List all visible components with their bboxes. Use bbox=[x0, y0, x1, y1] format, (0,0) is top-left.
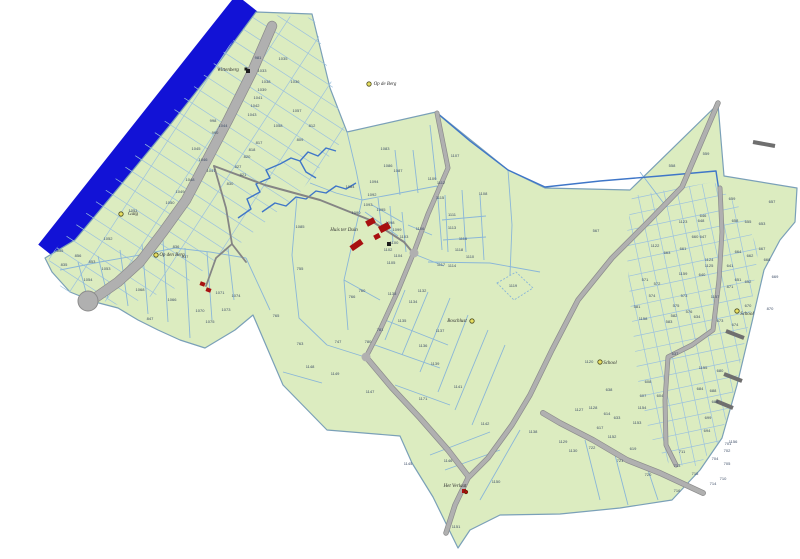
parcel-number: 1112 bbox=[437, 180, 446, 185]
place-label: Boschlust bbox=[447, 319, 467, 324]
parcel-number: 870 bbox=[767, 306, 774, 311]
parcel-number: 710 bbox=[720, 476, 727, 481]
parcel-number: 1100 bbox=[390, 240, 399, 245]
parcel-number: 1087 bbox=[394, 168, 404, 173]
parcel-number: 1142 bbox=[481, 421, 490, 426]
parcel-number: 674 bbox=[732, 322, 739, 327]
parcel-number: 837 bbox=[182, 254, 189, 259]
parcel-number: 1106 bbox=[416, 226, 425, 231]
parcel-grid-line bbox=[780, 248, 800, 559]
parcel-number: 651 bbox=[735, 277, 742, 282]
parcel-number: 1084 bbox=[346, 184, 356, 189]
parcel-number: 1057 bbox=[293, 108, 303, 113]
parcel-number: 1102 bbox=[384, 247, 393, 252]
parcel-number: 634 bbox=[694, 314, 701, 319]
parcel-number: 1038 bbox=[262, 79, 272, 84]
parcel-number: 1159 bbox=[679, 271, 688, 276]
parcel-number: 638 bbox=[606, 387, 613, 392]
parcel-number: 1041 bbox=[254, 95, 264, 100]
parcel-number: 567 bbox=[593, 228, 600, 233]
parcel-number: 1132 bbox=[418, 288, 427, 293]
parcel-number: 660 bbox=[692, 234, 699, 239]
parcel-number: 1107 bbox=[451, 153, 460, 158]
parcel-number: 1141 bbox=[454, 384, 463, 389]
parcel-grid-line bbox=[0, 0, 800, 122]
parcel-number: 668 bbox=[764, 257, 771, 262]
map-canvas[interactable]: WittenbergOp de BergGalgOp den BergHuis … bbox=[0, 0, 800, 559]
parcel-number: 1128 bbox=[589, 405, 598, 410]
parcel-number: 720 bbox=[645, 472, 652, 477]
parcel-grid-line bbox=[0, 0, 800, 21]
parcel-number: 1151 bbox=[452, 524, 461, 529]
parcel-number: 1071 bbox=[216, 290, 226, 295]
place-label: Wittenberg bbox=[217, 68, 239, 73]
parcel-number: 1093 bbox=[364, 202, 374, 207]
parcel-grid-line bbox=[758, 0, 800, 559]
parcel-number: 714 bbox=[710, 481, 717, 486]
parcel-number: 1094 bbox=[370, 179, 380, 184]
parcel-number: 558 bbox=[669, 163, 676, 168]
place-label: School bbox=[603, 361, 617, 366]
parcel-number: 1147 bbox=[366, 389, 375, 394]
road-stub bbox=[753, 142, 775, 146]
parcel-number: 694 bbox=[704, 428, 711, 433]
landmark-square-icon bbox=[245, 68, 248, 71]
place-label: Op de Berg bbox=[374, 82, 397, 87]
parcel-number: 1156 bbox=[729, 439, 738, 444]
parcel-number: 1048 bbox=[186, 177, 196, 182]
parcel-number: 647 bbox=[700, 234, 707, 239]
parcel-number: 637 bbox=[672, 351, 679, 356]
parcel-number: 657 bbox=[769, 199, 776, 204]
parcel-number: 1054 bbox=[84, 277, 94, 282]
parcel-grid-line bbox=[0, 0, 800, 46]
parcel-number: 1150 bbox=[492, 479, 501, 484]
parcel-number: 633 bbox=[614, 415, 621, 420]
parcel-number: 1130 bbox=[569, 448, 578, 453]
parcel-number: 1116 bbox=[459, 236, 468, 241]
parcel-number: 1138 bbox=[529, 429, 538, 434]
parcel-number: 1137 bbox=[436, 328, 445, 333]
parcel-number: 658 bbox=[732, 218, 739, 223]
parcel-number: 684 bbox=[697, 386, 704, 391]
parcel-number: 573 bbox=[681, 293, 688, 298]
parcel-number: 576 bbox=[686, 309, 693, 314]
parcel-grid-line bbox=[0, 0, 800, 84]
parcel-number: 1155 bbox=[699, 365, 708, 370]
landmark-circle-icon bbox=[367, 82, 371, 86]
parcel-number: 1123 bbox=[679, 219, 688, 224]
parcel-grid-line bbox=[796, 0, 800, 559]
parcel-number: 1051 bbox=[129, 208, 139, 213]
landmark-circle-icon bbox=[470, 319, 474, 323]
parcel-grid-line bbox=[33, 0, 800, 111]
parcel-number: 871 bbox=[727, 284, 734, 289]
parcel-number: 812 bbox=[309, 123, 316, 128]
parcel-number: 1124 bbox=[705, 257, 714, 262]
parcel-number: 662 bbox=[747, 253, 754, 258]
parcel-number: 607 bbox=[640, 393, 647, 398]
parcel-grid-line bbox=[18, 0, 800, 38]
parcel-number: 760 bbox=[359, 288, 366, 293]
parcel-number: 1122 bbox=[651, 243, 660, 248]
parcel-number: 699 bbox=[705, 415, 712, 420]
parcel-grid-line bbox=[771, 0, 800, 559]
parcel-number: 1145 bbox=[404, 461, 413, 466]
parcel-number: 713 bbox=[674, 463, 681, 468]
parcel-number: 847 bbox=[147, 316, 154, 321]
parcel-number: 1033 bbox=[258, 68, 268, 73]
road-junction bbox=[410, 249, 419, 258]
parcel-grid-line bbox=[783, 0, 800, 559]
parcel-number: 1103 bbox=[400, 234, 409, 239]
parcel-number: 661 bbox=[680, 246, 687, 251]
parcel-number: 575 bbox=[673, 303, 680, 308]
parcel-number: 1111 bbox=[448, 212, 457, 217]
parcel-number: 619 bbox=[630, 446, 637, 451]
parcel-number: 1139 bbox=[431, 361, 440, 366]
parcel-number: 981 bbox=[255, 55, 262, 60]
parcel-grid-line bbox=[30, 0, 800, 97]
parcel-number: 664 bbox=[735, 249, 742, 254]
parcel-grid-line bbox=[0, 0, 83, 377]
parcel-number: 1171 bbox=[419, 396, 428, 401]
parcel-number: 835 bbox=[61, 262, 68, 267]
parcel-number: 817 bbox=[256, 140, 263, 145]
parcel-number: 663 bbox=[664, 250, 671, 255]
parcel-number: 1125 bbox=[705, 263, 714, 268]
landmark-circle-icon bbox=[154, 253, 158, 257]
parcel-number: 1114 bbox=[448, 263, 457, 268]
parcel-number: 1083 bbox=[381, 146, 391, 151]
parcel-number: 583 bbox=[666, 319, 673, 324]
landmark-red-icon bbox=[464, 490, 468, 494]
parcel-number: 1052 bbox=[104, 236, 114, 241]
parcel-number: 836 bbox=[173, 244, 180, 249]
parcel-number: 1053 bbox=[102, 266, 112, 271]
parcel-number: 1109 bbox=[428, 176, 437, 181]
parcel-grid-line bbox=[0, 0, 800, 72]
parcel-number: 830 bbox=[227, 181, 234, 186]
parcel-number: 721 bbox=[617, 458, 624, 463]
parcel-number: 1045 bbox=[192, 146, 202, 151]
parcel-number: 704 bbox=[712, 456, 719, 461]
parcel-number: 1136 bbox=[419, 343, 428, 348]
parcel-number: 1085 bbox=[296, 224, 306, 229]
parcel-number: 1073 bbox=[222, 307, 232, 312]
parcel-number: 747 bbox=[335, 339, 342, 344]
parcel-number: 673 bbox=[717, 318, 724, 323]
parcel-number: 1157 bbox=[711, 294, 720, 299]
parcel-number: 1044 bbox=[219, 123, 229, 128]
parcel-number: 722 bbox=[589, 445, 596, 450]
parcel-grid-line bbox=[12, 0, 800, 9]
parcel-grid-line bbox=[180, 551, 800, 559]
parcel-number: 1098 bbox=[386, 220, 396, 225]
parcel-number: 1117 bbox=[437, 262, 446, 267]
parcel-number: 1113 bbox=[448, 225, 457, 230]
parcel-number: 1095 bbox=[377, 207, 387, 212]
parcel-number: 1105 bbox=[387, 260, 396, 265]
parcel-number: 1129 bbox=[559, 439, 568, 444]
parcel-number: 1075 bbox=[206, 319, 216, 324]
parcel-number: 1146 bbox=[444, 458, 453, 463]
parcel-grid-line bbox=[0, 0, 800, 135]
parcel-number: 659 bbox=[729, 196, 736, 201]
parcel-number: 716 bbox=[674, 488, 681, 493]
parcel-number: 559 bbox=[703, 151, 710, 156]
parcel-number: 1042 bbox=[251, 103, 261, 108]
place-label: Huis ter Duin bbox=[329, 228, 358, 233]
parcel-number: 655 bbox=[745, 219, 752, 224]
landmark-circle-icon bbox=[735, 309, 739, 313]
parcel-number: 1149 bbox=[331, 371, 340, 376]
parcel-number: 581 bbox=[634, 304, 641, 309]
parcel-number: 574 bbox=[649, 293, 656, 298]
map-page: WittenbergOp de BergGalgOp den BergHuis … bbox=[0, 0, 800, 559]
parcel-number: 571 bbox=[642, 277, 649, 282]
parcel-number: 617 bbox=[597, 425, 604, 430]
parcel-number: 1099 bbox=[393, 227, 403, 232]
parcel-number: 711 bbox=[679, 449, 686, 454]
parcel-number: 1066 bbox=[168, 297, 178, 302]
parcel-number: 1119 bbox=[509, 283, 518, 288]
parcel-number: 998 bbox=[210, 118, 217, 123]
landmark-circle-icon bbox=[598, 360, 602, 364]
parcel-number: 1039 bbox=[258, 87, 268, 92]
parcel-number: 572 bbox=[654, 281, 661, 286]
parcel-grid-line bbox=[4, 0, 800, 9]
landmark-circle-icon bbox=[119, 212, 123, 216]
parcel-number: 604 bbox=[657, 393, 664, 398]
parcel-number: 1134 bbox=[409, 299, 418, 304]
parcel-number: 614 bbox=[604, 411, 611, 416]
parcel-number: 1148 bbox=[306, 364, 315, 369]
parcel-grid-line bbox=[0, 0, 800, 97]
parcel-number: 1108 bbox=[479, 191, 488, 196]
parcel-number: 766 bbox=[349, 294, 356, 299]
parcel-number: 1035 bbox=[279, 56, 289, 61]
parcel-number: 667 bbox=[759, 246, 766, 251]
road-end-bulb bbox=[78, 291, 98, 311]
parcel-number: 1158 bbox=[639, 316, 648, 321]
parcel-grid-line bbox=[0, 0, 800, 59]
parcel-number: 855 bbox=[57, 248, 64, 253]
parcel-grid-line bbox=[0, 0, 800, 34]
parcel-number: 669 bbox=[772, 274, 779, 279]
parcel-number: 809 bbox=[297, 137, 304, 142]
parcel-number: 1086 bbox=[384, 163, 394, 168]
parcel-number: 1104 bbox=[394, 253, 403, 258]
parcel-number: 1049 bbox=[176, 189, 186, 194]
parcel-number: 1118 bbox=[455, 247, 464, 252]
parcel-number: 1153 bbox=[633, 420, 642, 425]
parcel-number: 820 bbox=[244, 154, 251, 159]
parcel-number: 715 bbox=[692, 471, 699, 476]
parcel-number: 1047 bbox=[207, 168, 217, 173]
parcel-grid-line bbox=[15, 0, 800, 23]
parcel-number: 1133 bbox=[388, 291, 397, 296]
parcel-grid-line bbox=[0, 0, 800, 109]
parcel-number: 1036 bbox=[291, 79, 301, 84]
parcel-grid-line bbox=[177, 537, 800, 559]
parcel-number: 755 bbox=[297, 266, 304, 271]
parcel-number: 765 bbox=[273, 313, 280, 318]
parcel-number: 1074 bbox=[232, 293, 242, 298]
parcel-number: 1127 bbox=[575, 407, 584, 412]
parcel-number: 1046 bbox=[199, 157, 209, 162]
parcel-grid-line bbox=[27, 0, 800, 82]
parcel-number: 1090 bbox=[352, 210, 362, 215]
parcel-number: 780 bbox=[365, 339, 372, 344]
parcel-number: 1092 bbox=[368, 192, 378, 197]
parcel-number: 853 bbox=[89, 259, 96, 264]
parcel-number: 1154 bbox=[638, 405, 647, 410]
parcel-number: 640 bbox=[699, 272, 706, 277]
parcel-number: 990 bbox=[212, 130, 219, 135]
parcel-number: 818 bbox=[249, 147, 256, 152]
parcel-number: 641 bbox=[727, 263, 734, 268]
parcel-number: 763 bbox=[297, 341, 304, 346]
parcel-number: 1070 bbox=[196, 308, 206, 313]
place-label: Het Verlaat bbox=[443, 484, 468, 489]
parcel-number: 702 bbox=[724, 448, 731, 453]
parcel-number: 1043 bbox=[248, 112, 258, 117]
parcel-number: 856 bbox=[75, 253, 82, 258]
parcel-number: 1110 bbox=[466, 254, 475, 259]
parcel-grid-line bbox=[0, 0, 25, 339]
parcel-number: 1050 bbox=[166, 200, 176, 205]
road-junction bbox=[362, 353, 371, 362]
parcel-number: 821 bbox=[240, 172, 247, 177]
parcel-number: 705 bbox=[724, 461, 731, 466]
parcel-number: 1115 bbox=[436, 195, 445, 200]
parcel-number: 653 bbox=[759, 221, 766, 226]
parcel-grid-line bbox=[174, 522, 800, 559]
parcel-number: 670 bbox=[745, 303, 752, 308]
parcel-number: 582 bbox=[671, 313, 678, 318]
parcel-number: 781 bbox=[377, 327, 384, 332]
parcel-number: 680 bbox=[717, 368, 724, 373]
parcel-grid-line bbox=[24, 0, 800, 67]
parcel-number: 652 bbox=[745, 279, 752, 284]
parcel-number: 689 bbox=[712, 399, 719, 404]
parcel-grid-line bbox=[21, 0, 800, 53]
parcel-number: 1152 bbox=[608, 434, 617, 439]
parcel-number: 608 bbox=[645, 379, 652, 384]
parcel-number: 688 bbox=[710, 388, 717, 393]
parcel-number: 1120 bbox=[585, 359, 594, 364]
parcel-grid-line bbox=[0, 0, 54, 358]
place-label: School bbox=[740, 312, 754, 317]
parcel-number: 1068 bbox=[136, 287, 146, 292]
parcel-number: 648 bbox=[698, 218, 705, 223]
parcel-number: 827 bbox=[235, 164, 242, 169]
parcel-number: 1135 bbox=[398, 318, 407, 323]
parcel-number: 1058 bbox=[274, 123, 284, 128]
